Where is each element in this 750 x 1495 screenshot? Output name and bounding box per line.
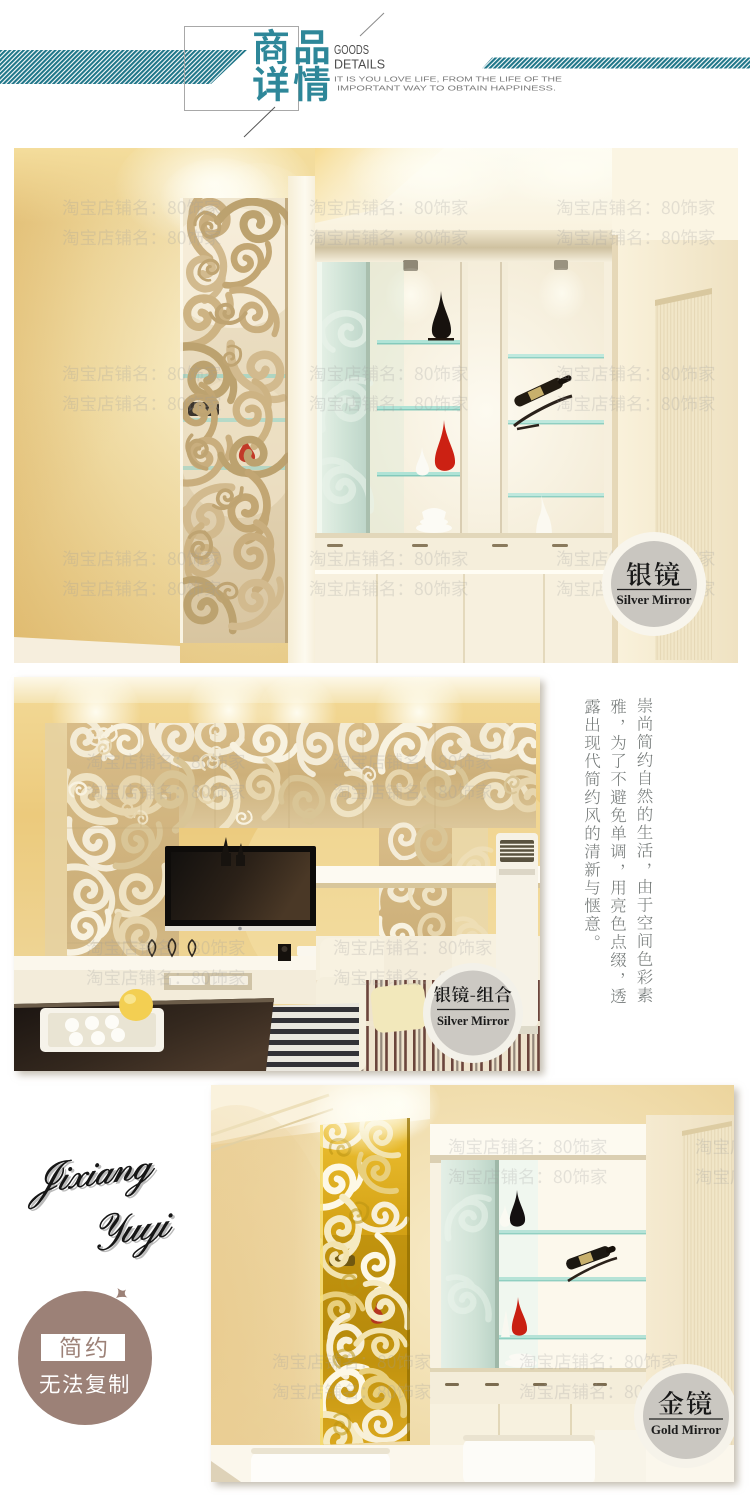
svg-text:Silver Mirror: Silver Mirror xyxy=(617,592,692,607)
svg-text:GOODS: GOODS xyxy=(334,43,369,57)
svg-text:Gold Mirror: Gold Mirror xyxy=(651,1422,721,1437)
svg-text:DETAILS: DETAILS xyxy=(334,58,385,72)
svg-text:Silver Mirror: Silver Mirror xyxy=(437,1014,510,1028)
svg-text:IT IS YOU LOVE LIFE, FROM THE: IT IS YOU LOVE LIFE, FROM THE LIFE OF TH… xyxy=(334,75,562,84)
svg-text:IMPORTANT WAY TO OBTAIN HAPPIN: IMPORTANT WAY TO OBTAIN HAPPINESS. xyxy=(337,84,556,93)
